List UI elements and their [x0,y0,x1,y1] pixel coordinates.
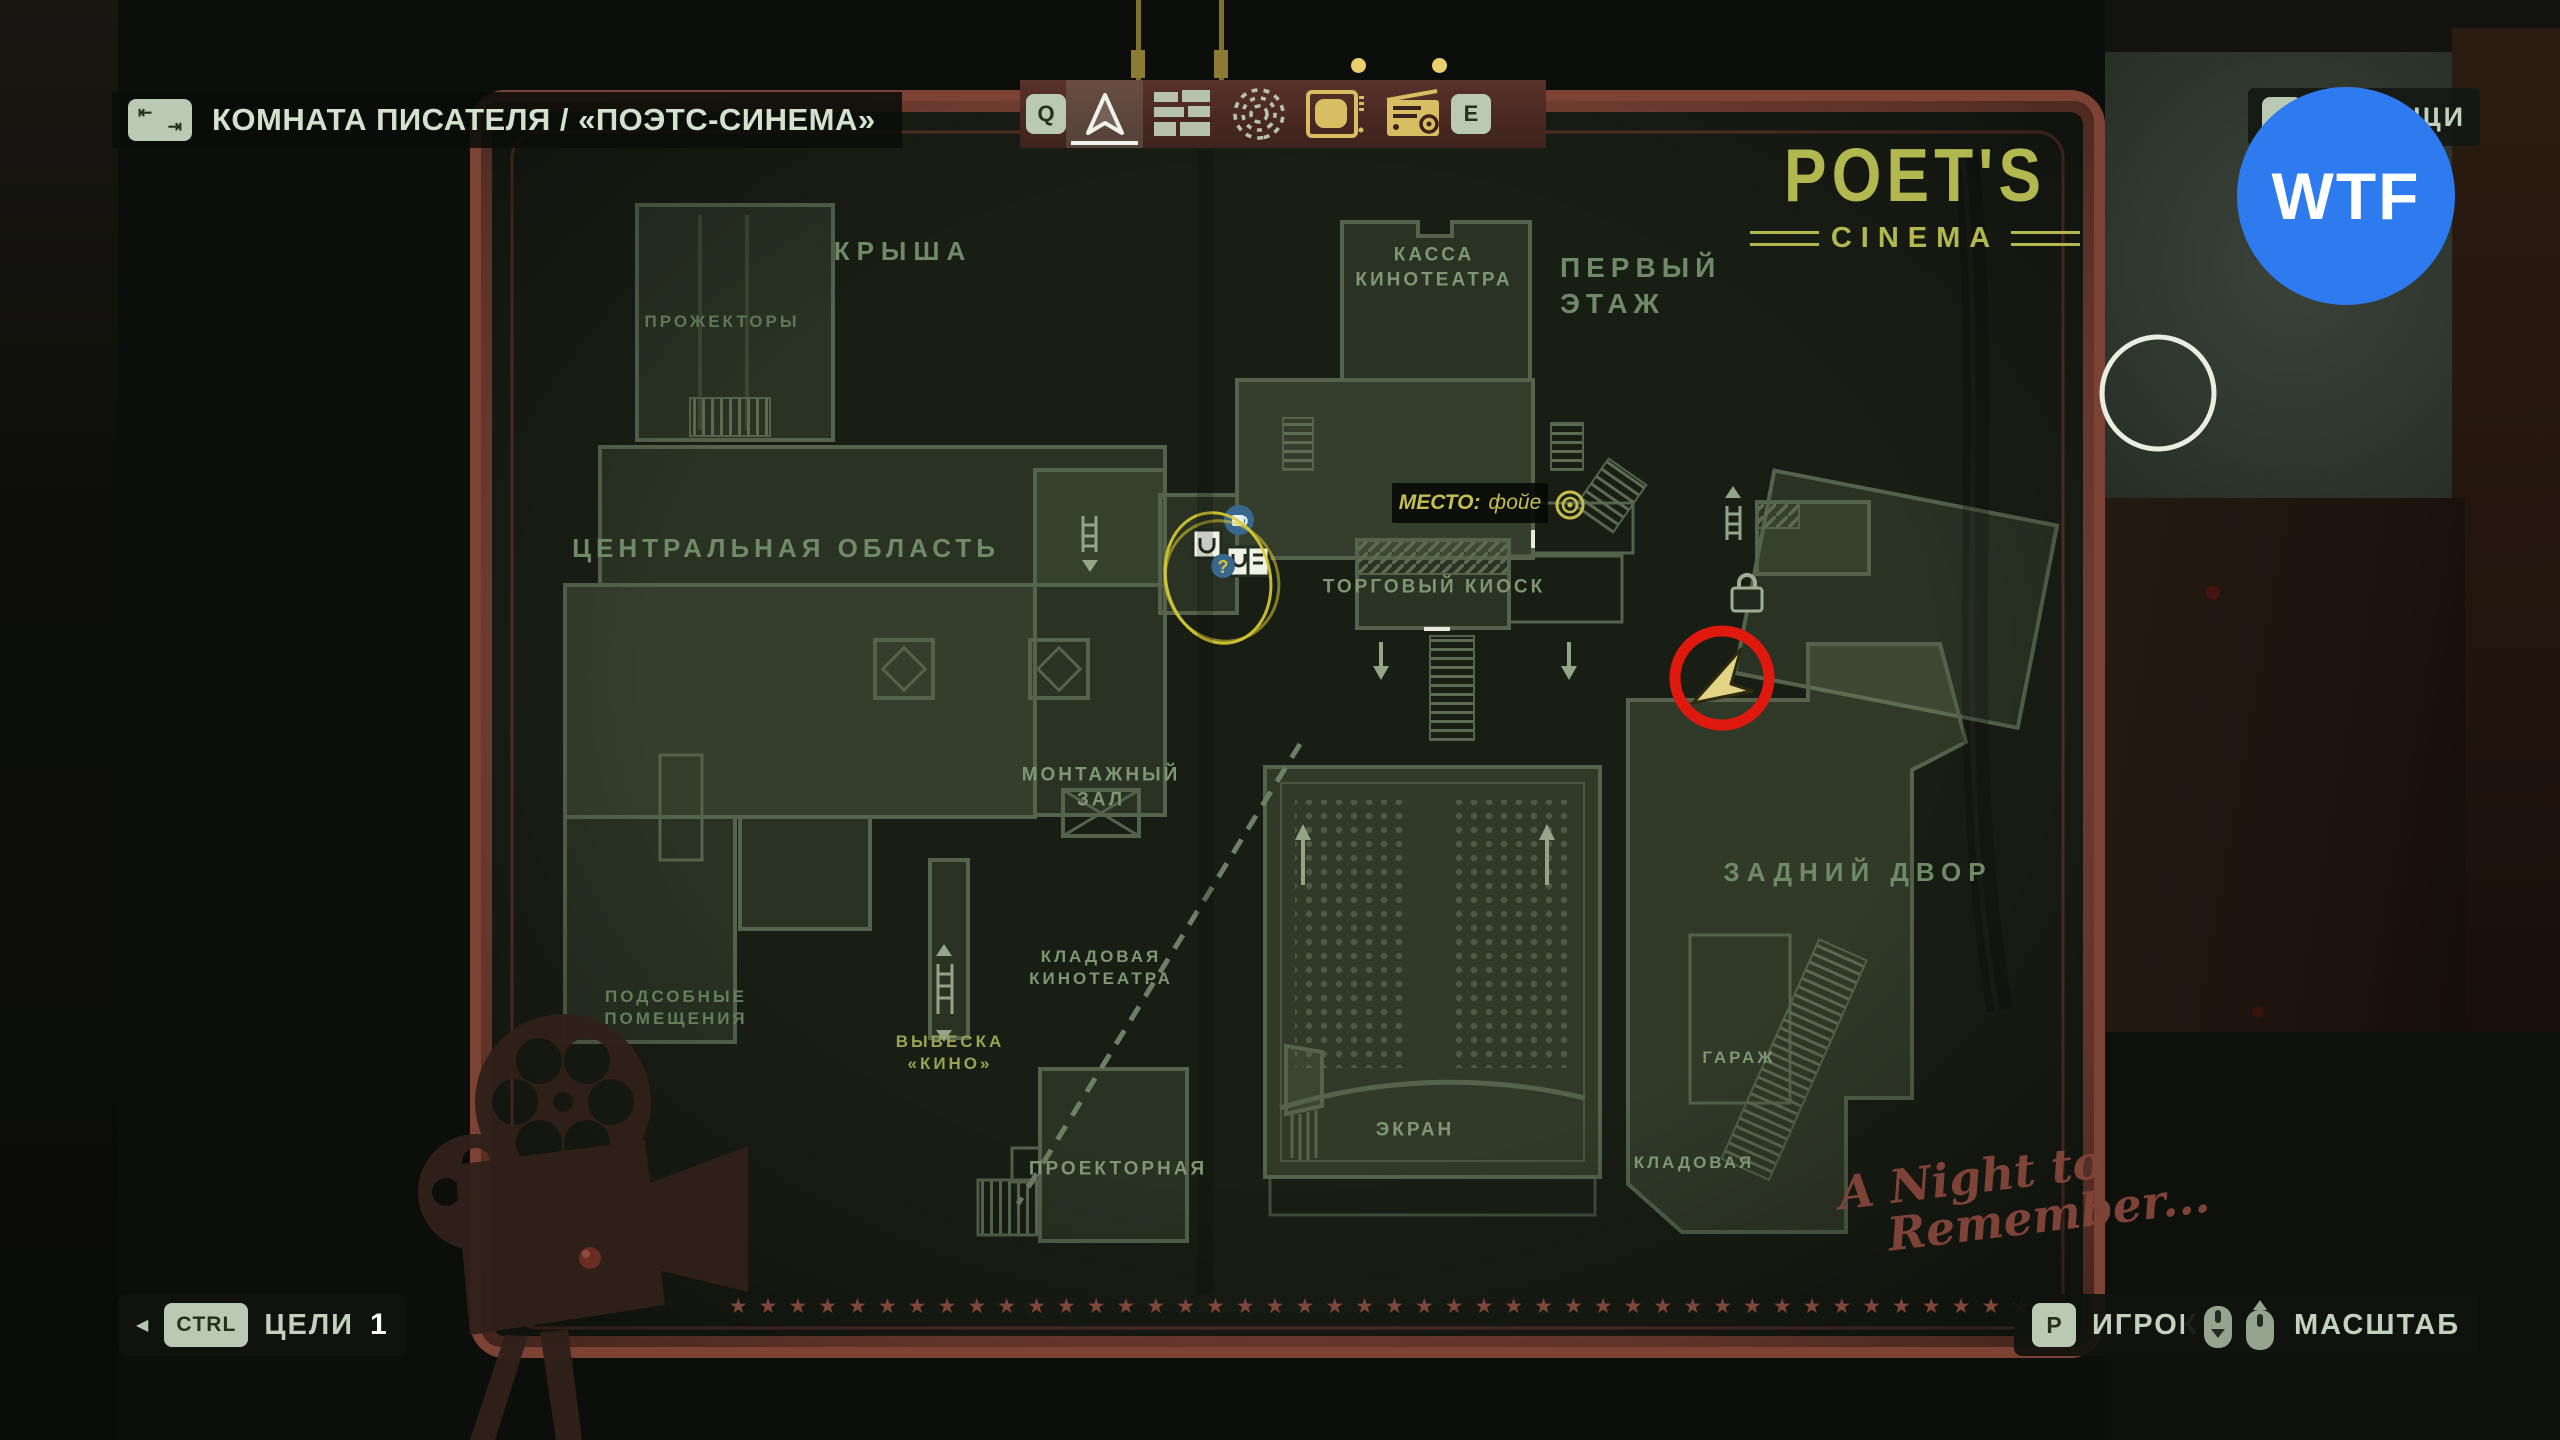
compass-ring [2102,337,2214,449]
map-label-roof: КРЫША [834,235,973,269]
notification-dot-tv [1351,58,1366,73]
chevron-left-icon: ◀ [136,1315,148,1335]
key-hint-p: P [2032,1303,2076,1347]
map-label-screen: ЭКРАН [1376,1119,1455,1144]
tab-map[interactable] [1066,80,1143,148]
map-label-storeroom: КЛАДОВАЯ [1634,1152,1754,1174]
breadcrumb-bar[interactable]: ⇤ ⇥ КОМНАТА ПИСАТЕЛЯ / «ПОЭТС-СИНЕМА» [112,92,902,148]
map-label-central-area: ЦЕНТРАЛЬНАЯ ОБЛАСТЬ [572,532,1000,566]
location-badge: МЕСТО: фойе [1392,483,1548,523]
map-label-garage: ГАРАЖ [1702,1047,1775,1069]
notification-dot-radio [1432,58,1447,73]
wtf-watermark: WTF [2237,87,2455,305]
game-screen: ? [0,0,2560,1440]
tab-echoes[interactable] [1220,80,1297,148]
location-value: фойе [1488,491,1541,515]
logo-line1: POET'S [1750,131,2080,218]
objectives-button[interactable]: ◀ CTRL ЦЕЛИ 1 [118,1294,405,1356]
tab-radio[interactable] [1374,80,1451,148]
map-label-projectors: ПРОЖЕКТОРЫ [644,311,799,333]
tab-plot-board[interactable] [1143,80,1220,148]
logo-line2: CINEMA [1831,222,1999,255]
zoom-label: МАСШТАБ [2294,1309,2460,1342]
map-label-box-office: КАССА КИНОТЕАТРА [1355,243,1512,292]
tab-tv[interactable] [1297,80,1374,148]
deco-line-right [2011,231,2080,246]
deco-line-left [1750,231,1819,246]
pin-dot [2206,586,2220,600]
map-label-editing-room: МОНТАЖНЫЙ ЗАЛ [1022,763,1181,812]
spiral-icon [1230,85,1288,143]
map-label-cinema-storage: КЛАДОВАЯ КИНОТЕАТРА [1029,946,1173,990]
mouse-wheel-up-icon [2244,1298,2276,1352]
tv-icon [1306,88,1366,140]
star-row: ★★★★★★★★★★★★★★★★★★★★★★★★★★★★★★★★★★★★★★★★… [690,1294,2080,1319]
map-label-utility-rooms: ПОДСОБНЫЕ ПОМЕЩЕНИЯ [604,986,747,1030]
player-label: ИГРОК [2092,1309,2199,1342]
tab-key-icon: ⇤ ⇥ [128,99,192,141]
map-label-projection-room: ПРОЕКТОРНАЯ [1029,1158,1207,1183]
pin-dot [2252,1006,2264,1018]
plot-board-icon [1152,90,1212,138]
location-label: МЕСТО: [1399,491,1481,515]
key-hint-q: Q [1026,94,1066,134]
map-label-backyard: ЗАДНИЙ ДВОР [1723,856,1992,890]
map-cursor-icon [1076,85,1134,143]
key-hint-ctrl: CTRL [164,1303,248,1347]
poets-cinema-logo: POET'S CINEMA [1750,138,2080,255]
objectives-count: 1 [370,1308,387,1342]
mouse-wheel-down-icon [2202,1300,2234,1350]
page-title: КОМНАТА ПИСАТЕЛЯ / «ПОЭТС-СИНЕМА» [212,102,876,138]
map-label-first-floor: ПЕРВЫЙ ЭТАЖ [1560,250,1721,323]
radio-icon [1383,88,1443,140]
key-hint-e: E [1451,94,1491,134]
objectives-label: ЦЕЛИ [264,1309,354,1342]
zoom-control[interactable]: МАСШТАБ [2184,1294,2478,1356]
board-toolbar: Q [1020,80,1546,148]
map-label-cinema-sign: ВЫВЕСКА «КИНО» [896,1031,1004,1075]
hanging-cords [1131,0,1228,82]
location-target-icon [1552,487,1588,523]
map-label-concession: ТОРГОВЫЙ КИОСК [1323,576,1546,601]
